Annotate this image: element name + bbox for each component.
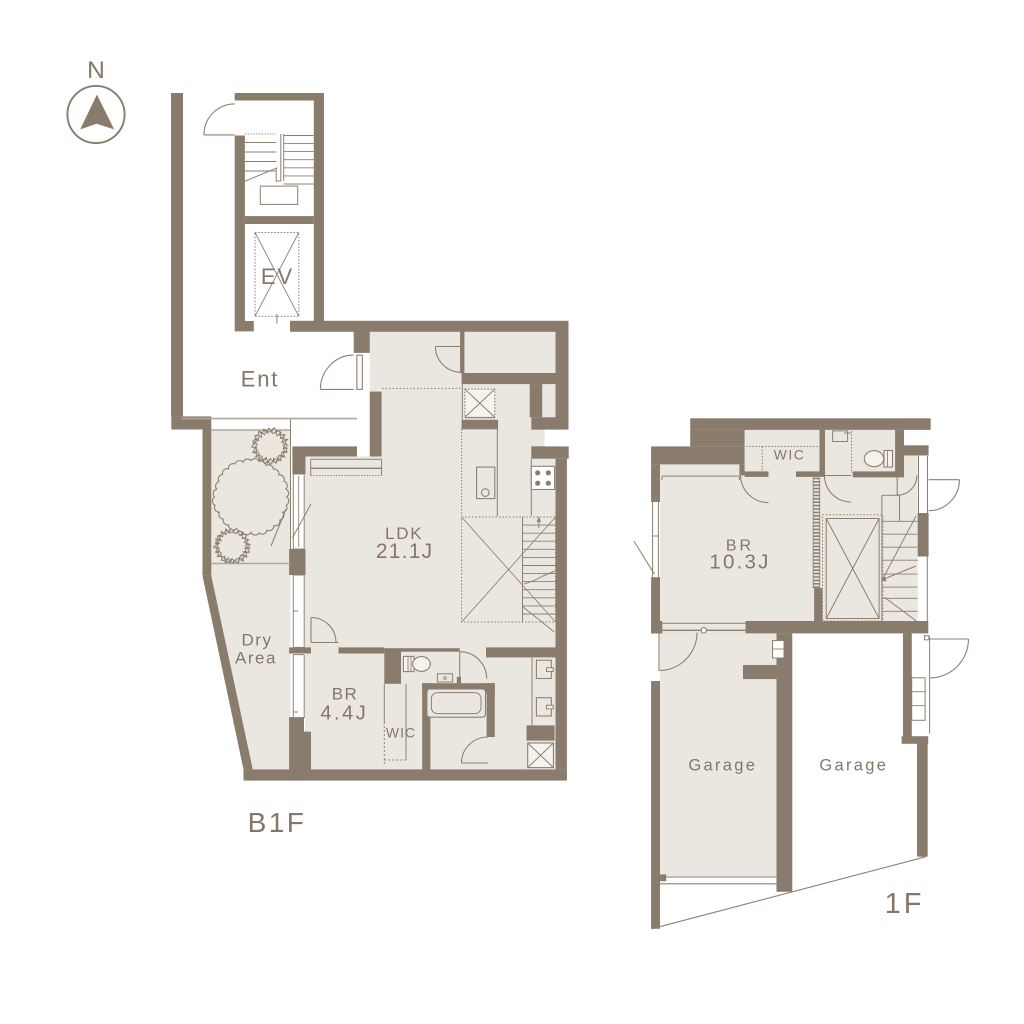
svg-text:BR: BR	[332, 685, 359, 704]
svg-text:4.4J: 4.4J	[320, 703, 368, 725]
svg-text:10.3J: 10.3J	[709, 551, 770, 574]
svg-text:Dry: Dry	[242, 631, 273, 650]
svg-text:Area: Area	[235, 649, 277, 668]
svg-text:21.1J: 21.1J	[376, 540, 433, 563]
svg-text:WIC: WIC	[386, 725, 416, 741]
svg-text:Garage: Garage	[688, 757, 757, 775]
svg-text:Garage: Garage	[819, 757, 888, 775]
svg-text:B1F: B1F	[248, 807, 307, 838]
svg-text:N: N	[87, 57, 106, 84]
svg-text:Ent: Ent	[241, 367, 279, 392]
svg-text:EV: EV	[261, 264, 294, 289]
svg-text:1F: 1F	[885, 888, 925, 920]
svg-text:WIC: WIC	[774, 447, 806, 463]
